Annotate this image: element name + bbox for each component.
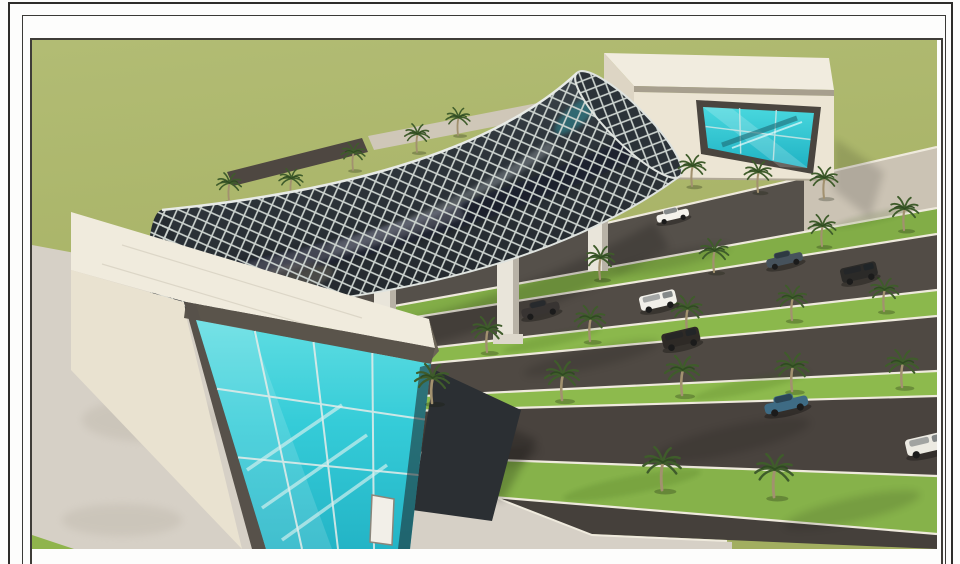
tower-roof	[604, 53, 834, 90]
architectural-rendering	[32, 40, 937, 549]
entrance-door	[370, 495, 394, 545]
